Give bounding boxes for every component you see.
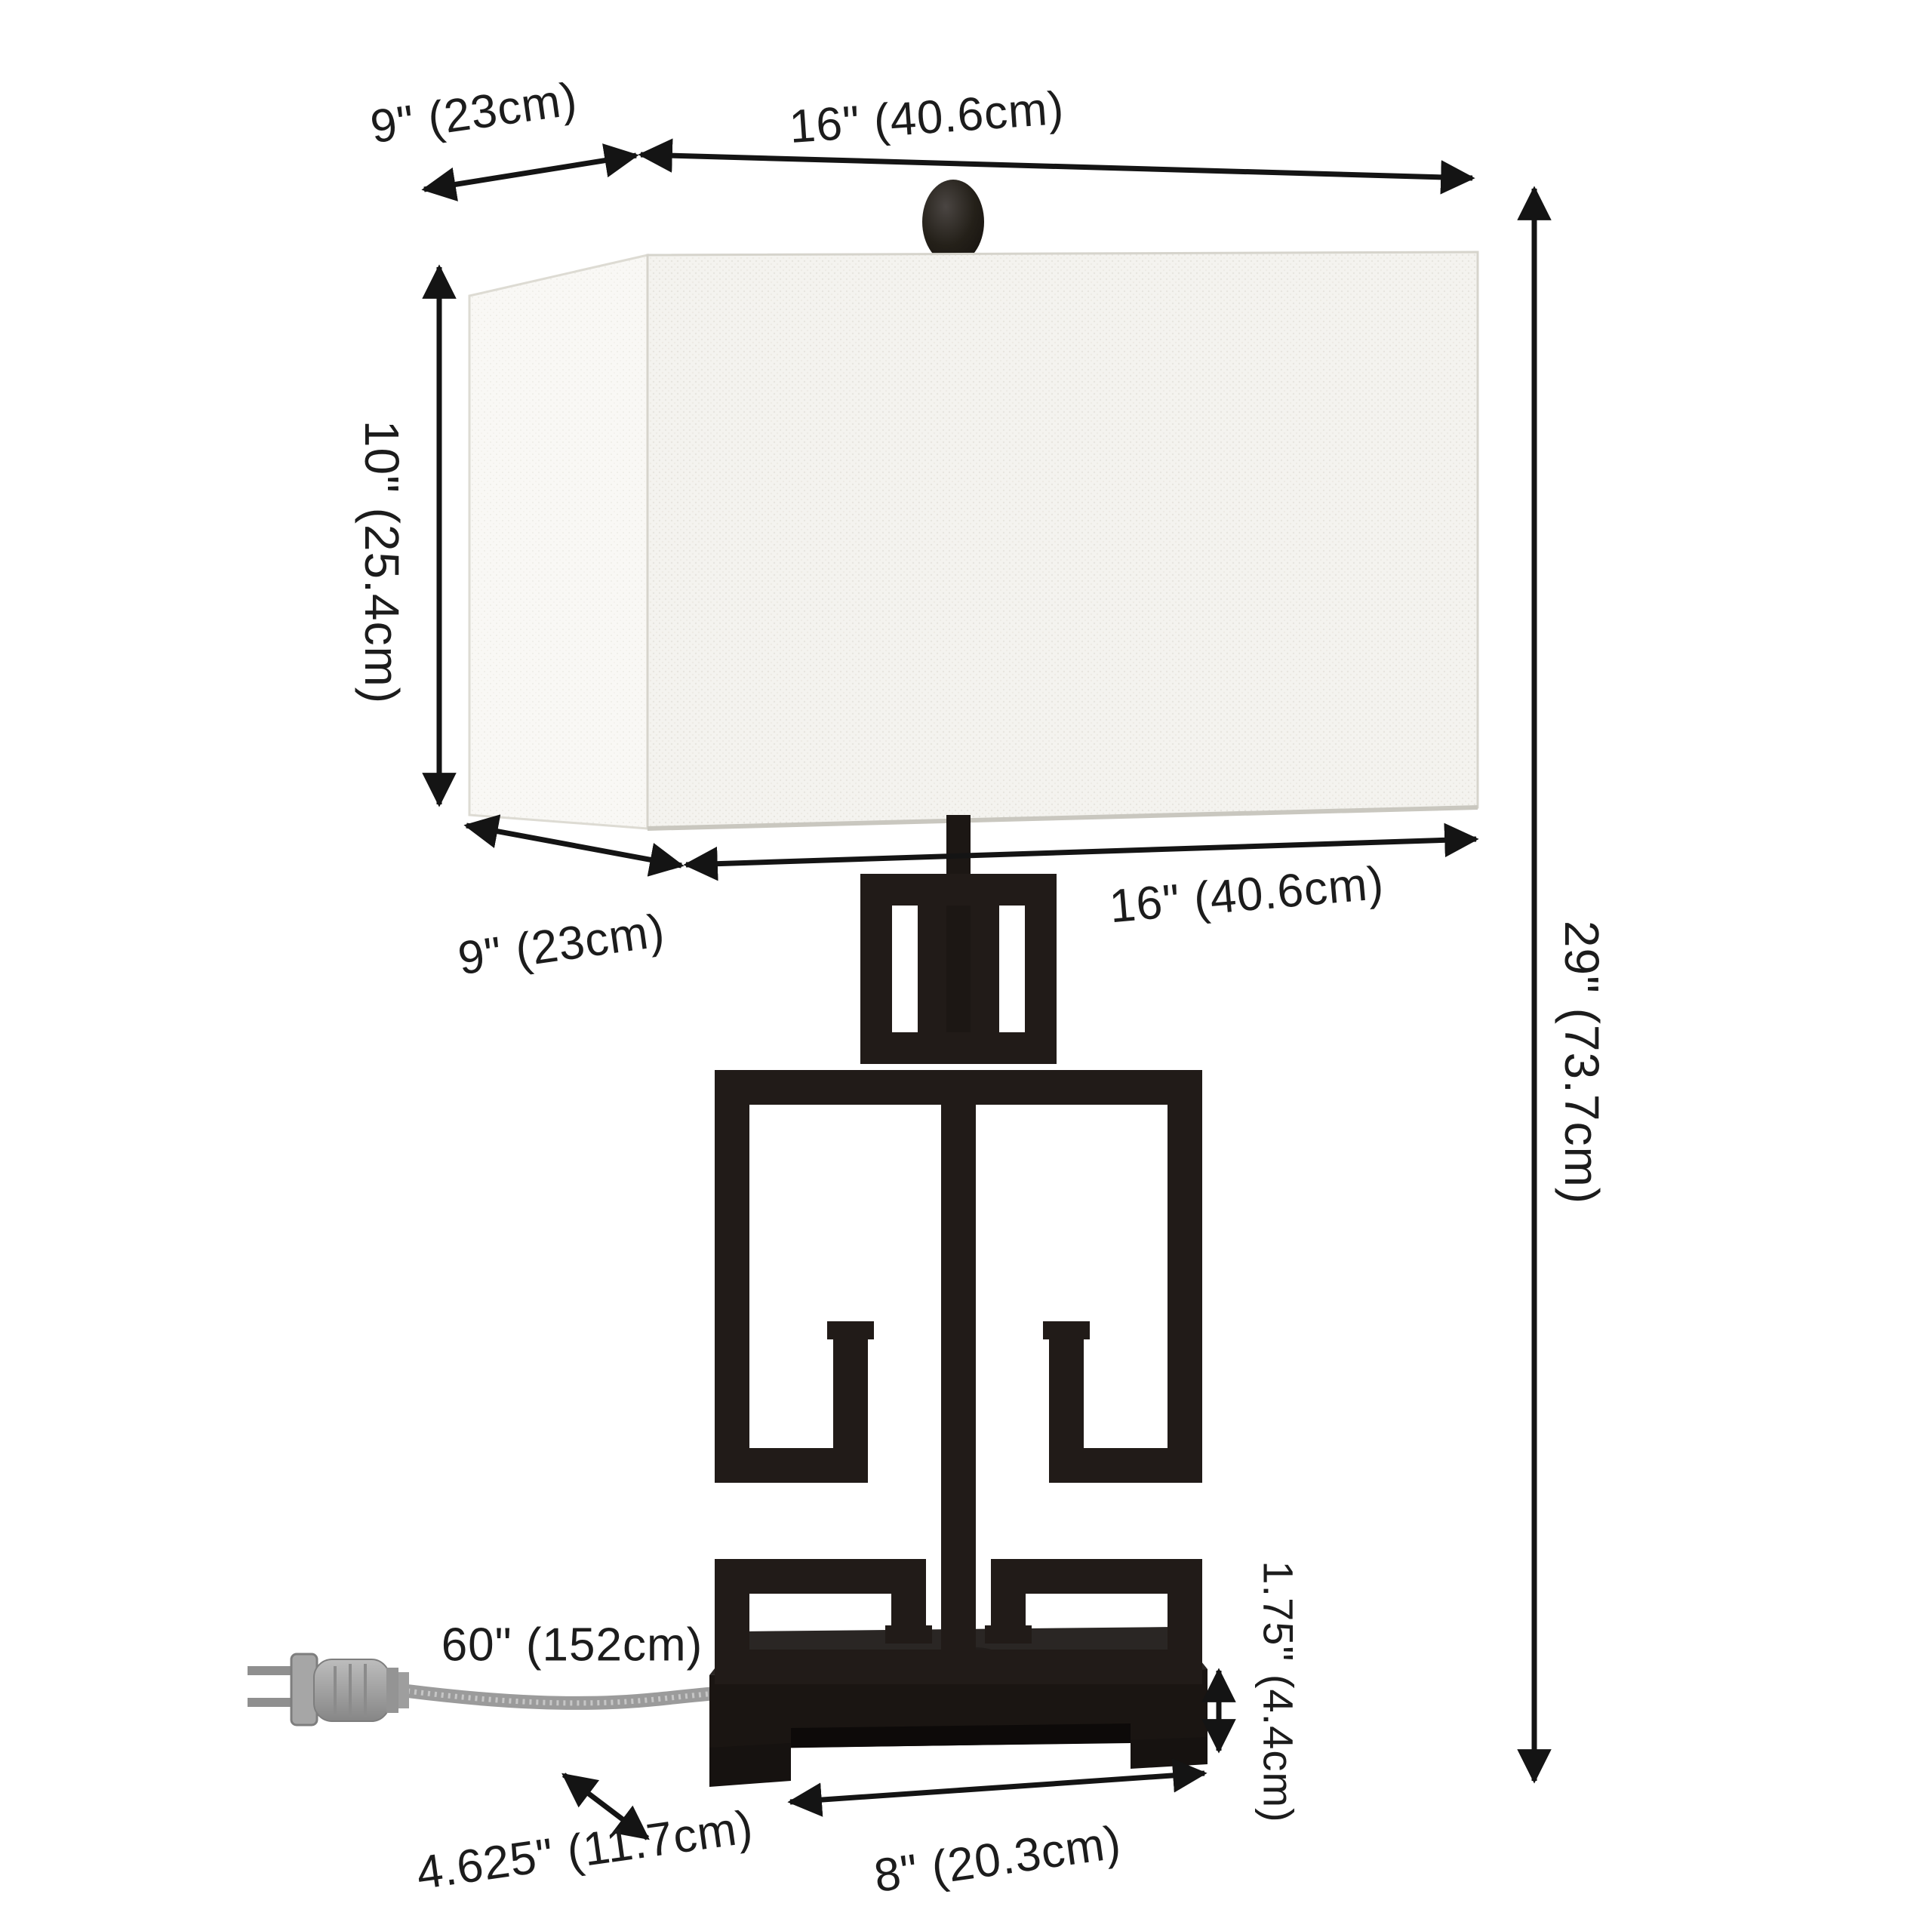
key-upper-left-hook <box>715 1448 868 1483</box>
plug-prong-bottom <box>248 1698 297 1707</box>
key-bottom-bar <box>715 1650 1202 1684</box>
base-foot-left <box>709 1743 791 1787</box>
key-upper-left-vertical <box>715 1070 749 1483</box>
label-shade-height: 10" (25.4cm) <box>355 420 409 704</box>
label-shade-bottom-width: 16" (40.6cm) <box>1107 857 1386 933</box>
label-shade-top-depth: 9" (23cm) <box>368 73 581 154</box>
arrow-shade-top-width <box>641 155 1472 178</box>
key-lower-right-cap <box>985 1625 1032 1644</box>
key-lower-left-stub <box>891 1594 926 1628</box>
label-base-width: 8" (20.3cm) <box>871 1816 1124 1902</box>
power-plug <box>248 1654 409 1725</box>
key-center-bar <box>941 1105 976 1684</box>
key-upper-right-hook <box>1049 1448 1202 1483</box>
base-foot-right <box>1131 1737 1207 1769</box>
lamp-shade <box>469 252 1478 829</box>
shade-front-face <box>648 252 1478 829</box>
lamp-dimension-diagram: 9" (23cm) 16" (40.6cm) 10" (25.4cm) 9" (… <box>0 0 1932 1931</box>
label-cord-length: 60" (152cm) <box>441 1619 703 1671</box>
key-upper-right-vertical <box>1168 1070 1202 1483</box>
plug-collar <box>386 1668 398 1713</box>
square-inner-bar-left <box>918 906 946 1032</box>
label-base-height: 1.75" (4.4cm) <box>1255 1560 1303 1822</box>
arrow-base-width <box>790 1773 1204 1802</box>
key-upper-left-stub <box>833 1336 868 1451</box>
key-lower-left-cap <box>885 1625 932 1644</box>
key-upper-right-cap <box>1043 1321 1090 1339</box>
greek-key-body <box>715 1070 1202 1684</box>
key-lower-right-stub <box>991 1594 1026 1628</box>
arrow-shade-top-depth <box>424 155 636 189</box>
plug-collar <box>398 1672 409 1708</box>
key-top-bar <box>715 1070 1202 1105</box>
label-overall-height: 29" (73.7cm) <box>1555 921 1609 1204</box>
label-shade-top-width: 16" (40.6cm) <box>788 82 1066 153</box>
key-upper-right-stub <box>1049 1336 1084 1451</box>
finial-sphere <box>922 180 984 264</box>
plug-prong-top <box>248 1666 297 1675</box>
table-lamp-illustration <box>248 180 1478 1787</box>
key-upper-left-cap <box>827 1321 874 1339</box>
label-base-depth: 4.625" (11.7cm) <box>414 1801 757 1900</box>
shade-side-face <box>469 255 648 829</box>
square-inner-bar-right <box>971 906 999 1032</box>
plug-faceplate <box>291 1654 317 1725</box>
arrow-shade-bottom-depth <box>466 826 681 866</box>
label-shade-bottom-depth: 9" (23cm) <box>455 905 669 985</box>
